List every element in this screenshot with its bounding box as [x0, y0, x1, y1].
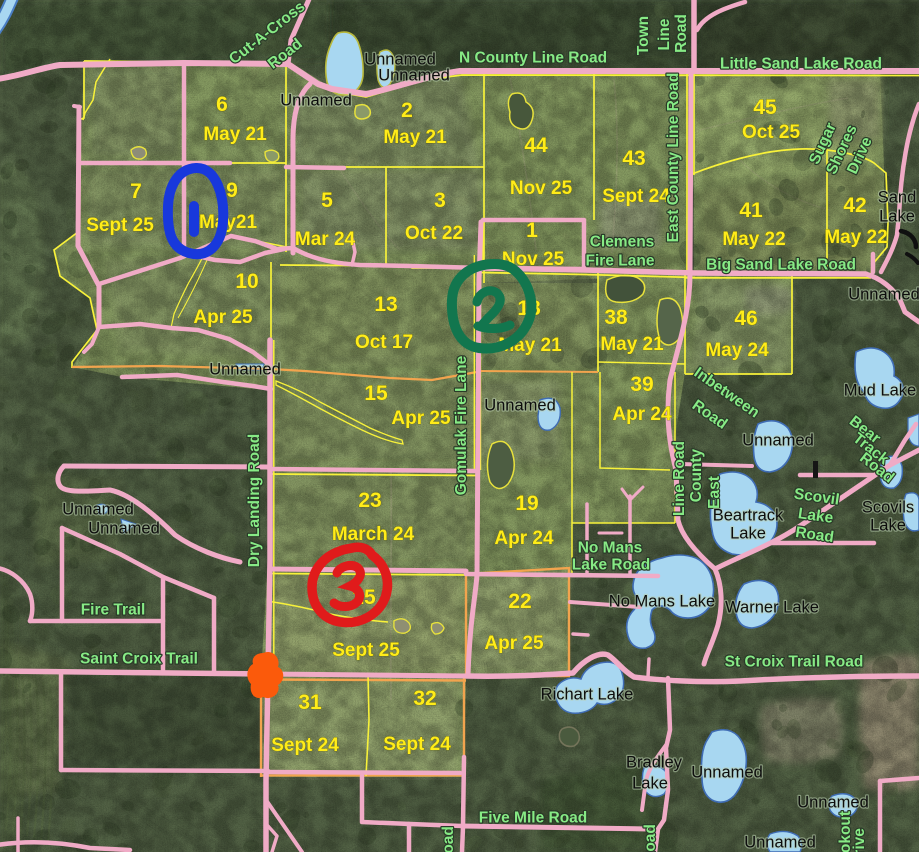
svg-text:9: 9: [226, 179, 238, 202]
svg-text:Sept 25: Sept 25: [332, 640, 400, 661]
svg-text:No Mans: No Mans: [578, 540, 643, 557]
svg-text:No Mans Lake: No Mans Lake: [609, 593, 715, 611]
svg-text:Apr 25: Apr 25: [391, 408, 451, 429]
svg-text:Unnamed: Unnamed: [744, 834, 816, 852]
svg-text:23: 23: [358, 489, 381, 512]
svg-text:Unnamed: Unnamed: [742, 432, 814, 450]
svg-text:Oct 25: Oct 25: [742, 122, 801, 143]
svg-text:3: 3: [434, 189, 446, 212]
svg-text:Apr 24: Apr 24: [494, 528, 554, 549]
svg-text:St Croix Trail Road: St Croix Trail Road: [725, 654, 864, 671]
svg-text:32: 32: [413, 687, 436, 710]
svg-text:Richart Lake: Richart Lake: [541, 686, 634, 704]
svg-text:45: 45: [753, 96, 777, 119]
svg-text:44: 44: [524, 134, 548, 157]
svg-text:5: 5: [321, 189, 333, 212]
svg-text:Mar 24: Mar 24: [295, 229, 356, 250]
svg-text:Nov 25: Nov 25: [510, 178, 573, 199]
svg-text:May 22: May 22: [722, 229, 785, 250]
svg-text:Beartrack: Beartrack: [713, 507, 784, 525]
svg-text:Sept 25: Sept 25: [86, 215, 154, 236]
svg-text:Clemens: Clemens: [590, 234, 655, 251]
svg-text:46: 46: [734, 307, 757, 330]
svg-text:1: 1: [526, 219, 538, 242]
svg-text:Lake: Lake: [632, 775, 668, 793]
svg-text:Road: Road: [673, 14, 690, 53]
svg-text:6: 6: [216, 93, 228, 116]
svg-text:Bradley: Bradley: [626, 754, 683, 772]
svg-text:Sept 24: Sept 24: [383, 734, 451, 755]
svg-text:Five Mile Road: Five Mile Road: [479, 810, 588, 827]
svg-text:10: 10: [235, 270, 258, 293]
svg-text:Big Sand Lake Road: Big Sand Lake Road: [706, 257, 856, 274]
svg-text:Oct 17: Oct 17: [355, 332, 413, 353]
svg-text:Unnamed: Unnamed: [62, 501, 134, 519]
svg-text:Unnamed: Unnamed: [280, 92, 352, 110]
svg-text:38: 38: [604, 306, 628, 329]
svg-text:Town: Town: [635, 16, 652, 55]
svg-text:County: County: [688, 448, 705, 502]
svg-text:15: 15: [364, 382, 388, 405]
svg-text:Unnamed: Unnamed: [88, 520, 160, 538]
svg-text:Little Sand Lake Road: Little Sand Lake Road: [720, 56, 882, 73]
svg-text:Unnamed: Unnamed: [484, 397, 556, 415]
svg-text:Apr 25: Apr 25: [193, 307, 253, 328]
svg-text:7: 7: [130, 180, 142, 203]
svg-text:N County Line Road: N County Line Road: [459, 50, 607, 67]
svg-text:Apr 24: Apr 24: [612, 404, 672, 425]
svg-text:Lake Road: Lake Road: [572, 557, 650, 574]
svg-text:Fire Trail: Fire Trail: [81, 602, 146, 619]
svg-text:Line: Line: [656, 18, 673, 50]
svg-text:May 21: May 21: [383, 127, 447, 148]
svg-text:May 22: May 22: [824, 227, 887, 248]
svg-text:East County Line Road: East County Line Road: [665, 73, 682, 243]
svg-text:Unnamed: Unnamed: [848, 286, 919, 304]
svg-text:39: 39: [630, 373, 653, 396]
svg-text:Dry Landing Road: Dry Landing Road: [246, 434, 263, 567]
svg-text:Gomulak Fire Lane: Gomulak Fire Lane: [453, 355, 470, 495]
svg-text:May 21: May 21: [600, 334, 664, 355]
svg-text:Oct 22: Oct 22: [405, 223, 463, 244]
svg-text:Road: Road: [440, 826, 457, 852]
svg-text:Unnamed: Unnamed: [209, 361, 281, 379]
svg-text:22: 22: [508, 590, 531, 613]
svg-text:42: 42: [843, 194, 866, 217]
svg-text:Warner Lake: Warner Lake: [725, 599, 819, 617]
svg-text:Road: Road: [642, 824, 659, 852]
svg-text:2: 2: [401, 99, 413, 122]
svg-text:Lake: Lake: [730, 525, 766, 543]
svg-text:East: East: [706, 476, 723, 509]
svg-text:May 21: May 21: [203, 124, 267, 145]
svg-text:43: 43: [622, 147, 645, 170]
svg-text:Sept 24: Sept 24: [271, 735, 339, 756]
svg-text:19: 19: [515, 492, 538, 515]
svg-text:41: 41: [739, 199, 763, 222]
svg-text:Scovils: Scovils: [862, 499, 914, 517]
svg-text:Fire Lane: Fire Lane: [586, 253, 655, 270]
svg-text:Unnamed: Unnamed: [691, 764, 763, 782]
svg-text:Sept 24: Sept 24: [602, 186, 670, 207]
svg-text:Mud Lake: Mud Lake: [844, 382, 916, 400]
svg-text:Line Road: Line Road: [671, 441, 688, 516]
svg-text:Unnamed: Unnamed: [378, 67, 450, 85]
svg-text:March 24: March 24: [332, 524, 415, 545]
svg-text:Drive: Drive: [851, 828, 868, 852]
svg-text:Lake: Lake: [870, 517, 906, 535]
svg-text:Unnamed: Unnamed: [797, 794, 869, 812]
svg-text:Sand: Sand: [878, 189, 917, 207]
svg-text:May 24: May 24: [705, 340, 769, 361]
svg-text:Lake: Lake: [879, 208, 915, 226]
svg-text:Saint Croix Trail: Saint Croix Trail: [80, 651, 198, 668]
svg-text:13: 13: [374, 293, 397, 316]
svg-text:31: 31: [298, 691, 322, 714]
svg-text:Apr 25: Apr 25: [484, 633, 544, 654]
